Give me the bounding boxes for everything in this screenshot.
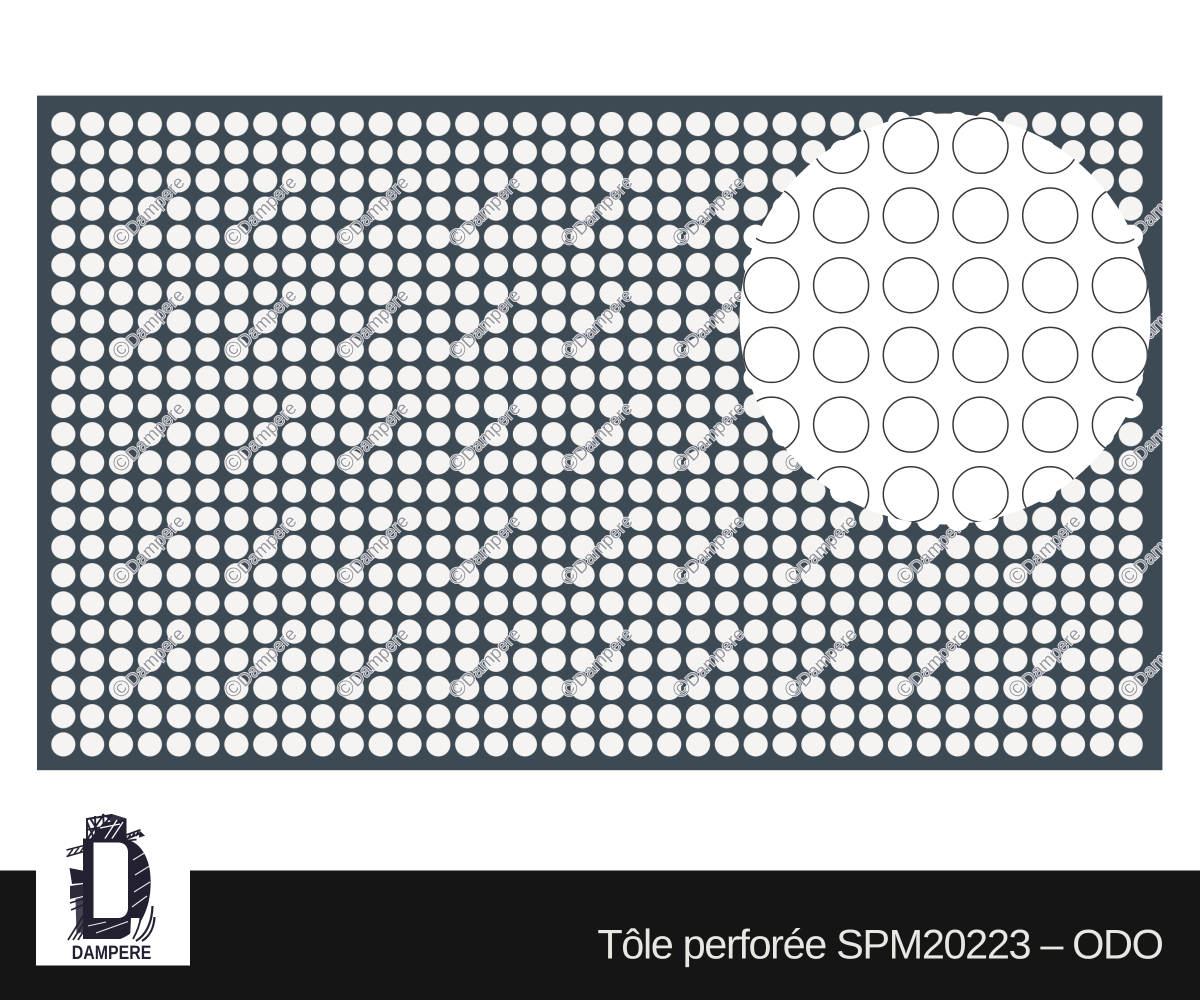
svg-text:Tôle perforée SPM20223 – ODO: Tôle perforée SPM20223 – ODO [597, 921, 1162, 968]
svg-text:DAMPERE: DAMPERE [72, 942, 152, 964]
